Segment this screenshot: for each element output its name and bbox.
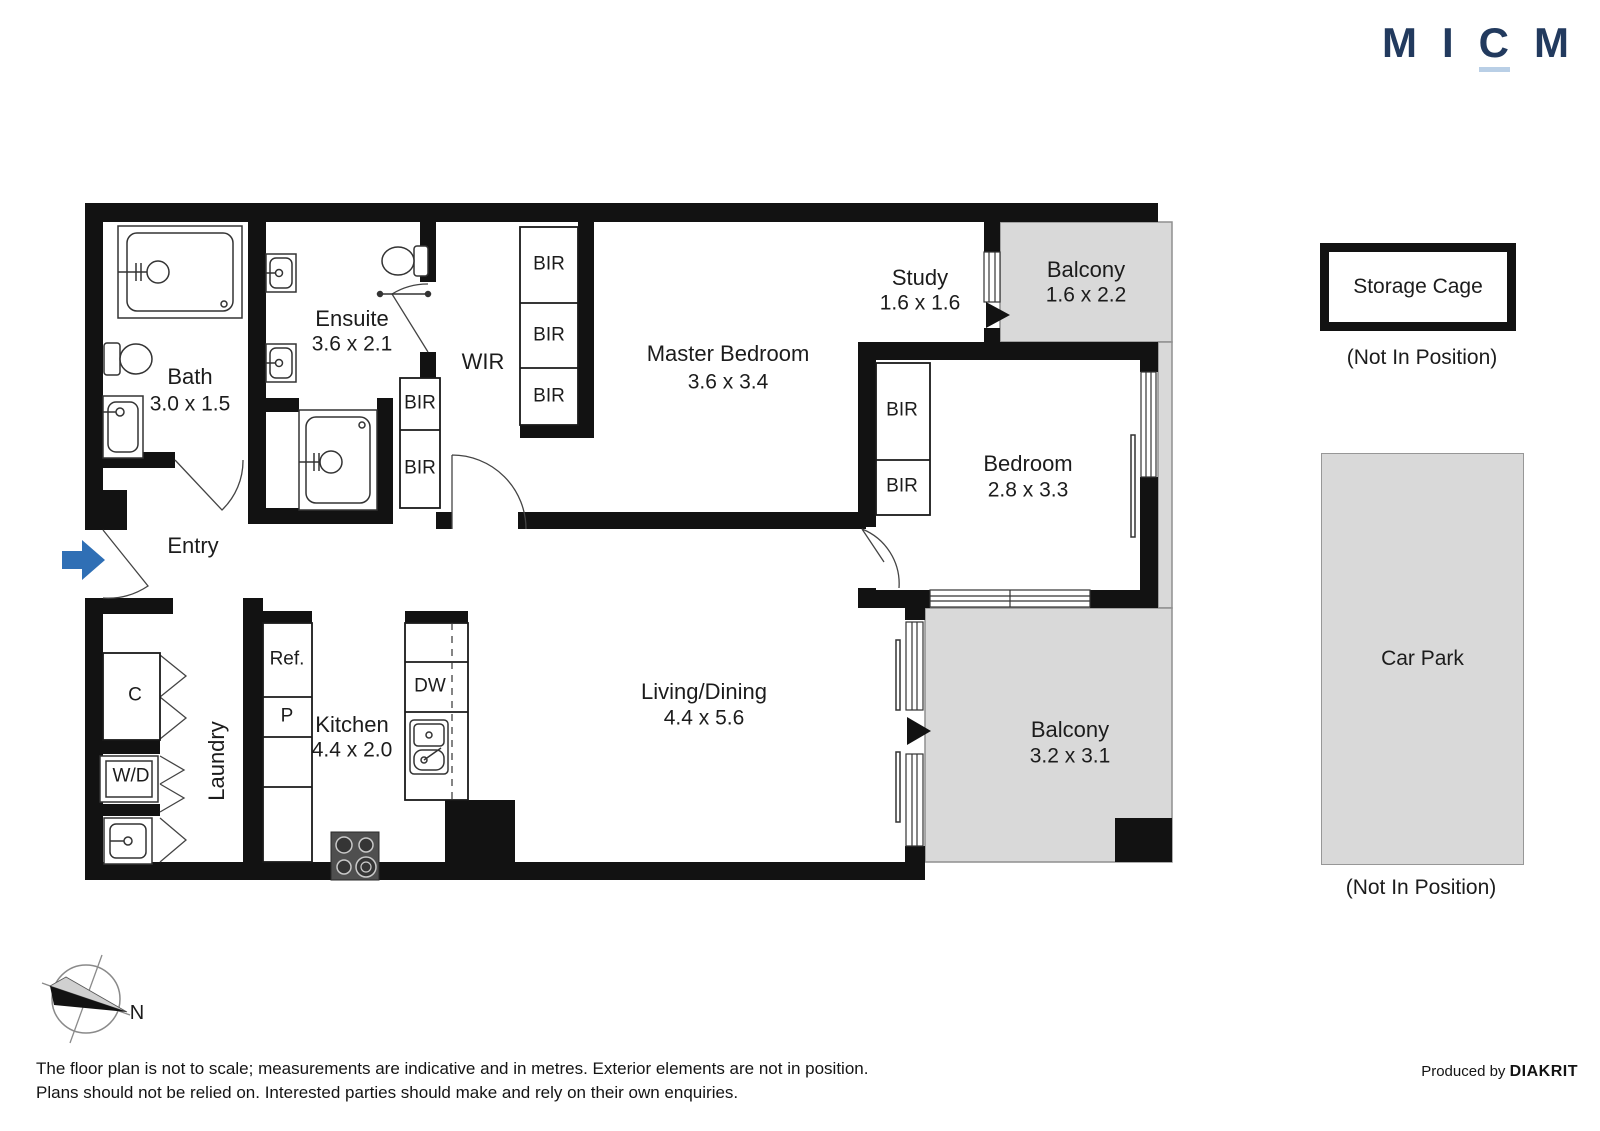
living-balcony-window-top <box>906 622 923 710</box>
bedroom-balcony-window <box>930 590 1090 607</box>
ensuite-toilet <box>382 246 428 276</box>
ensuite-sink-1 <box>266 254 296 292</box>
entry-door <box>103 530 148 598</box>
logo-letter-m2: M <box>1534 22 1570 64</box>
study-window <box>984 252 1000 302</box>
room-label-balcony-top: Balcony <box>1047 258 1125 282</box>
room-dims-bedroom: 2.8 x 3.3 <box>988 478 1069 501</box>
disclaimer-line-1: The floor plan is not to scale; measurem… <box>36 1057 868 1081</box>
bir-label-hall-2: BIR <box>404 459 436 480</box>
bath-shower <box>118 226 242 318</box>
room-label-study: Study <box>892 266 948 290</box>
fridge-label: Ref. <box>270 650 305 671</box>
room-dims-living-dining: 4.4 x 5.6 <box>664 706 745 729</box>
living-rail-bottom <box>896 752 900 822</box>
storage-cage-note: (Not In Position) <box>1347 346 1498 370</box>
room-label-ensuite: Ensuite <box>315 307 388 331</box>
diakrit-brand: DIAKRIT <box>1510 1063 1578 1080</box>
car-park-note: (Not In Position) <box>1346 876 1497 900</box>
room-dims-study: 1.6 x 1.6 <box>880 291 961 314</box>
ensuite-sink-2 <box>266 344 296 382</box>
room-label-bedroom: Bedroom <box>983 452 1072 476</box>
master-door <box>452 455 526 529</box>
kitchen-sink <box>410 720 448 774</box>
storage-cage-box: Storage Cage <box>1320 243 1516 331</box>
room-label-living-dining: Living/Dining <box>641 680 767 704</box>
logo-letter-c: C <box>1479 22 1510 72</box>
produced-by-text: Produced by <box>1421 1063 1505 1080</box>
room-dims-kitchen: 4.4 x 2.0 <box>312 738 393 761</box>
bir-label-bedroom-1: BIR <box>886 401 918 422</box>
washer-dryer-label: W/D <box>113 767 150 788</box>
bir-label-bedroom-2: BIR <box>886 477 918 498</box>
room-label-master-bedroom: Master Bedroom <box>647 342 810 366</box>
bir-label-hall-1: BIR <box>404 394 436 415</box>
storage-cage-label: Storage Cage <box>1353 275 1483 299</box>
room-label-wir: WIR <box>462 350 505 374</box>
bath-vanity <box>103 396 143 458</box>
bedroom-door <box>862 529 899 588</box>
room-label-entry: Entry <box>167 534 218 558</box>
dishwasher-label: DW <box>414 677 446 698</box>
bath-toilet <box>104 343 152 375</box>
room-dims-master-bedroom: 3.6 x 3.4 <box>688 370 769 393</box>
laundry-sink <box>104 818 152 864</box>
car-park-box: Car Park <box>1321 453 1524 865</box>
ensuite-shower <box>299 410 377 510</box>
living-balcony-window-bottom <box>906 754 923 846</box>
room-dims-ensuite: 3.6 x 2.1 <box>312 332 393 355</box>
bir-label-wir-1: BIR <box>533 255 565 276</box>
room-dims-balcony-bottom: 3.2 x 3.1 <box>1030 744 1111 767</box>
cooktop <box>331 832 379 880</box>
room-label-balcony-bottom: Balcony <box>1031 718 1109 742</box>
pantry-label: P <box>281 707 294 728</box>
micm-logo: M I C M <box>1382 22 1570 72</box>
laundry-closet-doors <box>160 655 186 862</box>
ensuite-towel-rail <box>378 292 431 297</box>
bedroom-robe-rail <box>1131 435 1135 537</box>
compass-north-label: N <box>130 1002 144 1024</box>
balcony-side-strip <box>1158 342 1172 608</box>
car-park-label: Car Park <box>1381 647 1464 671</box>
produced-by: Produced by DIAKRIT <box>1421 1063 1578 1081</box>
entry-arrow-icon <box>62 540 105 580</box>
bir-label-wir-3: BIR <box>533 387 565 408</box>
room-label-laundry: Laundry <box>205 721 229 801</box>
bedroom-side-window <box>1141 372 1156 477</box>
room-dims-bath: 3.0 x 1.5 <box>150 392 231 415</box>
logo-letter-i: I <box>1442 22 1455 64</box>
compass-icon <box>42 955 130 1043</box>
bir-label-wir-2: BIR <box>533 326 565 347</box>
disclaimer-text: The floor plan is not to scale; measurem… <box>36 1057 868 1105</box>
disclaimer-line-2: Plans should not be relied on. Intereste… <box>36 1081 868 1105</box>
closet-label: C <box>128 686 142 707</box>
bath-door <box>175 460 243 510</box>
room-dims-balcony-top: 1.6 x 2.2 <box>1046 283 1127 306</box>
logo-letter-m1: M <box>1382 22 1418 64</box>
floorplan-page: Bath 3.0 x 1.5 Ensuite 3.6 x 2.1 WIR Mas… <box>0 0 1600 1131</box>
room-label-kitchen: Kitchen <box>315 713 388 737</box>
living-rail-top <box>896 640 900 710</box>
room-label-bath: Bath <box>167 365 212 389</box>
